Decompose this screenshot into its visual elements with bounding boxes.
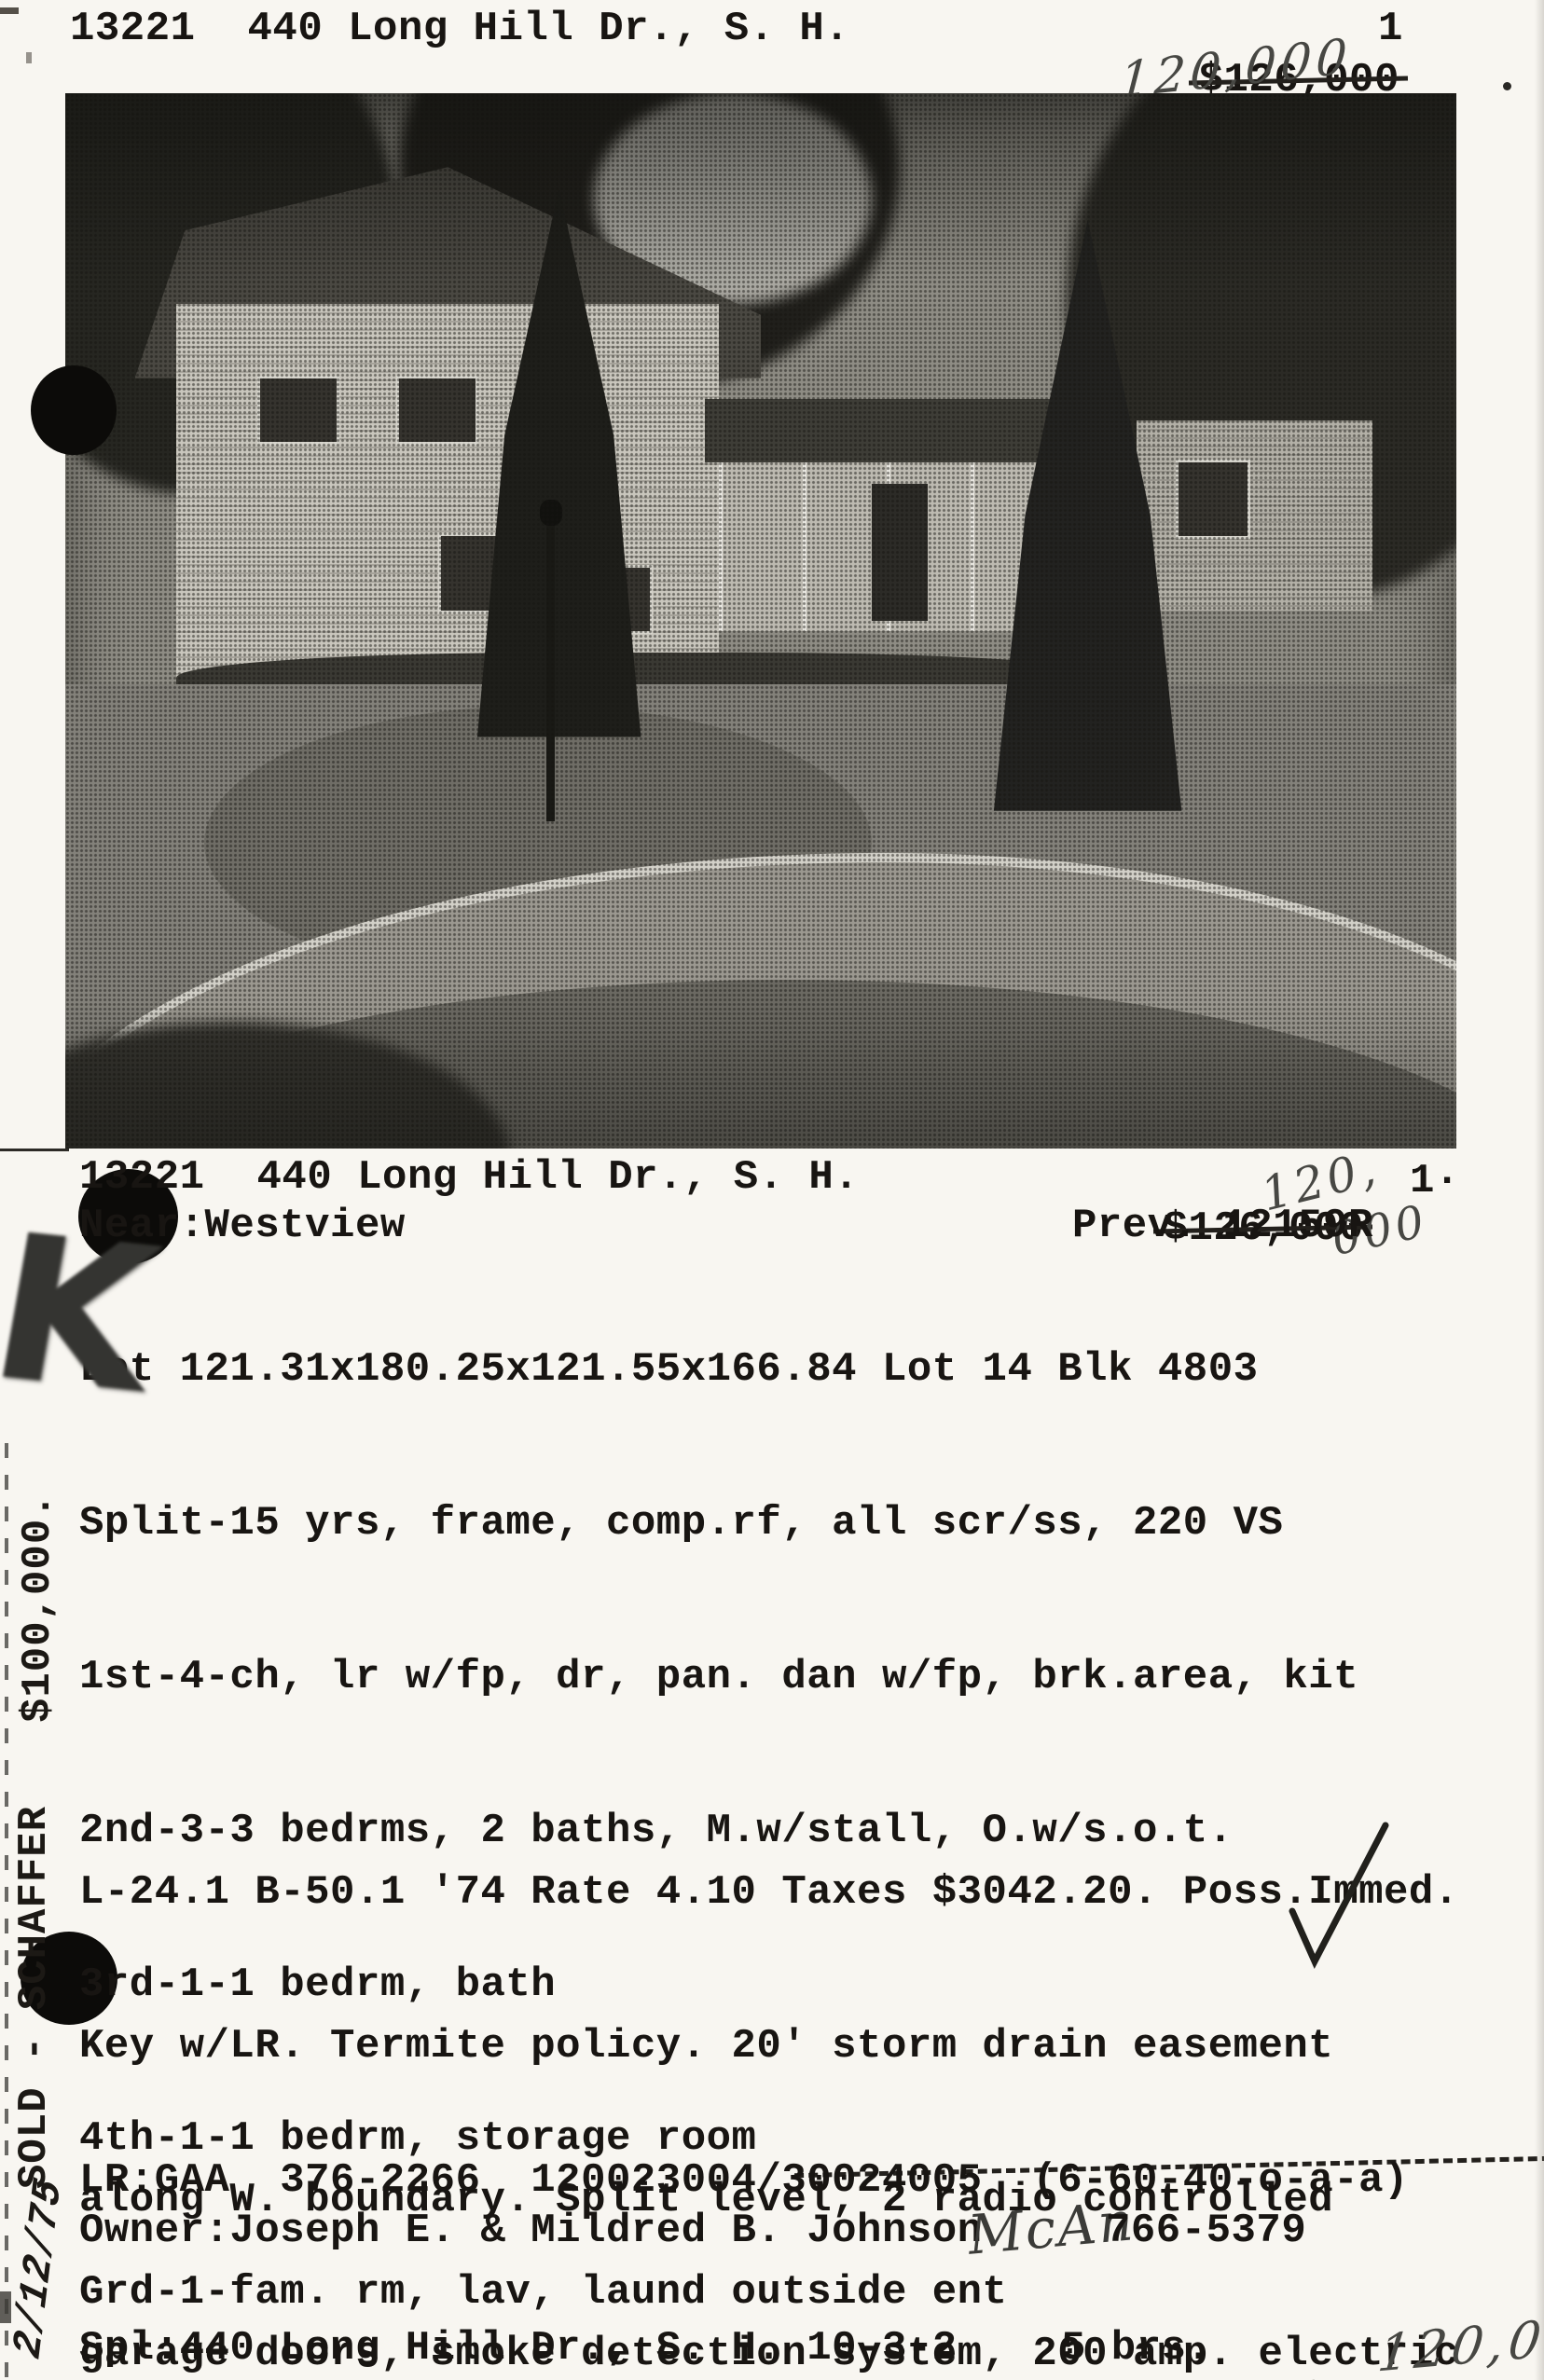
broker-line: LR:GAA 376-2266 120023004/30024005 (6-60… <box>79 2155 1409 2207</box>
detail-line: 1st-4-ch, lr w/fp, dr, pan. dan w/fp, br… <box>79 1652 1358 1703</box>
photo-vignette <box>65 93 1456 1149</box>
scan-edge-shade <box>1535 0 1544 2380</box>
scan-speck <box>0 7 19 14</box>
remarks-block: L-24.1 B-50.1 '74 Rate 4.10 Taxes $3042.… <box>79 1765 1459 2380</box>
remark-line: Key w/LR. Termite policy. 20' storm drai… <box>79 2021 1459 2072</box>
footer-bedrooms: 5 brs. <box>1061 2323 1211 2374</box>
detail-line: Split-15 yrs, frame, comp.rf, all scr/ss… <box>79 1498 1358 1549</box>
photo-bottom-tick <box>0 1149 69 1151</box>
scan-edge-line <box>5 1443 8 2380</box>
property-photo <box>65 93 1456 1149</box>
listing-number: 13221 <box>79 1152 205 1204</box>
checkmark-icon <box>1285 1820 1397 1974</box>
listing-number: 13221 <box>70 4 196 55</box>
checkmark-annotation <box>1285 1820 1397 1978</box>
margin-sold-date: 2/12/75 <box>6 2174 73 2363</box>
property-address: 440 Long Hill Dr., S. H. <box>257 1152 860 1204</box>
listing-header: 13221 440 Long Hill Dr., S. H. <box>79 1152 859 1204</box>
scan-speck <box>0 2291 11 2323</box>
scan-speck <box>1503 82 1511 90</box>
owner-line: Owner:Joseph E. & Mildred B. Johnson <box>79 2206 983 2257</box>
page-number: 1 <box>1378 4 1403 55</box>
margin-sold-amount: $100,000. <box>15 1493 62 1723</box>
property-address: 440 Long Hill Dr., S. H. <box>248 4 850 55</box>
remark-line: L-24.1 B-50.1 '74 Rate 4.10 Taxes $3042.… <box>79 1867 1459 1919</box>
scan-speck <box>26 52 32 63</box>
owner-phone: 766-5379 <box>1106 2206 1306 2257</box>
top-header: 13221 440 Long Hill Dr., S. H. <box>70 4 849 55</box>
margin-sold-label: SOLD - SCHAFFER <box>11 1806 58 2189</box>
scanned-listing-card: 13221 440 Long Hill Dr., S. H. $126,000 … <box>0 0 1544 2380</box>
black-dot-mark <box>31 365 117 455</box>
detail-line: Lot 121.31x180.25x121.55x166.84 Lot 14 B… <box>79 1344 1358 1396</box>
footer-spl-line: Spl:440 Long Hill Dr., S. H. 10-3-2 <box>79 2323 958 2374</box>
